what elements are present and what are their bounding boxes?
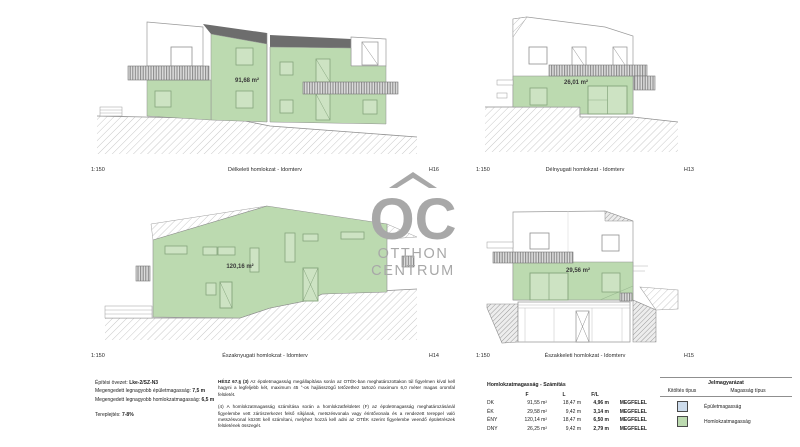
otthon-centrum-watermark: OC OTTHON CENTRUM <box>360 168 466 280</box>
row-dny-l: 9,42 m <box>547 426 581 432</box>
zone-line: Építési övezet: Lke-2/SZ-N3 <box>95 379 215 387</box>
zone-value: Lke-2/SZ-N3 <box>129 380 158 386</box>
facade-height-calculation-table: Homlokzatmagasság - Számítás F L F/L DK … <box>487 382 647 432</box>
facade-area-label: 91,68 m² <box>235 77 259 84</box>
facade-height-value: 6,5 m <box>201 397 214 403</box>
zone-info-block: Építési övezet: Lke-2/SZ-N3 Megengedett … <box>95 379 215 420</box>
header-empty <box>609 392 647 398</box>
row-eny-f: 120,14 m² <box>507 417 547 423</box>
drawing-scale: 1:150 <box>476 353 516 359</box>
row-dk-l: 18,47 m <box>547 400 581 406</box>
facade-area-label: 26,01 m² <box>564 79 588 86</box>
row-dny-f: 26,25 m² <box>507 426 547 432</box>
row-dny-result: MEGFELEL <box>609 426 647 432</box>
table-title: Homlokzatmagasság - Számítás <box>487 382 647 388</box>
slope-line: Tereplejtés: 7-8% <box>95 411 215 419</box>
elevation-southeast-canvas: 91,68 m² <box>85 4 445 164</box>
drawing-code: H14 <box>399 353 439 359</box>
legend-headers: Kitöltés típus Magasság típus <box>660 386 792 397</box>
row-dk-direction: DK <box>487 400 507 406</box>
legend: Jelmagyarázat Kitöltés típus Magasság tí… <box>660 377 792 427</box>
legend-col-height-type: Magasság típus <box>704 388 792 394</box>
facade-area-label: 29,56 m² <box>566 267 590 274</box>
row-dny-direction: DNY <box>487 426 507 432</box>
legend-label-facade-height: Homlokzatmagasság <box>704 419 792 425</box>
drawing-scale: 1:150 <box>91 353 131 359</box>
facade-height-label: Megengedett legnagyobb homlokzatmagasság… <box>95 397 201 403</box>
balcony <box>493 252 573 263</box>
facade-area-label: 120,16 m² <box>226 263 253 270</box>
drawing-caption: 1:150 Északnyugati homlokzat - Idomterv … <box>85 350 445 361</box>
header-empty <box>487 392 507 398</box>
house-left-section <box>128 22 267 122</box>
roof-icon <box>383 168 443 189</box>
drawing-scale: 1:150 <box>91 167 131 173</box>
balcony-end-left <box>136 266 150 281</box>
balcony-side <box>634 76 655 90</box>
building-height-label: Megengedett legnagyobb épületmagasság: <box>95 388 192 394</box>
drawing-title: Délkeleti homlokzat - Idomterv <box>131 167 399 173</box>
slope-value: 7-8% <box>122 412 134 418</box>
elevation-southwest: 26,01 m² 1:150 Délnyugati homlokzat - Id… <box>470 4 700 176</box>
header-fl: F/L <box>581 392 609 398</box>
table-grid: F L F/L DK 91,55 m² 18,47 m 4,96 m MEGFE… <box>487 392 647 432</box>
drawing-caption: 1:150 Délnyugati homlokzat - Idomterv H1… <box>470 164 700 175</box>
drawing-code: H15 <box>654 353 694 359</box>
regulation-clause-ref: HÉSZ 67.§ (3) <box>218 379 249 384</box>
building-height-line: Megengedett legnagyobb épületmagasság: 7… <box>95 387 215 395</box>
row-dk-fl: 4,96 m <box>581 400 609 406</box>
regulation-paragraph-1-text: Az épületmagasság megállapítása során az… <box>218 379 455 397</box>
row-ek-result: MEGFELEL <box>609 409 647 415</box>
row-ek-l: 9,42 m <box>547 409 581 415</box>
legend-swatch-building-height <box>677 401 688 412</box>
regulation-paragraph-2: (4) A homlokzatmagasság számítása során … <box>218 404 455 430</box>
row-eny-l: 18,47 m <box>547 417 581 423</box>
legend-label-building-height: Épületmagasság <box>704 404 792 410</box>
regulation-text-block: HÉSZ 67.§ (3) Az épületmagasság megállap… <box>218 379 455 436</box>
watermark-monogram: OC <box>360 194 466 246</box>
basement <box>518 302 630 342</box>
elevation-southeast: 91,68 m² 1:150 Délkeleti homlokzat - Ido… <box>85 4 445 176</box>
elevation-northeast-canvas: 29,56 m² <box>470 190 700 350</box>
roof-hatch <box>605 211 633 221</box>
legend-item-facade-height: Homlokzatmagasság <box>660 416 792 427</box>
drawing-title: Északnyugati homlokzat - Idomterv <box>131 353 399 359</box>
elevation-southwest-canvas: 26,01 m² <box>470 4 700 164</box>
watermark-line-2: CENTRUM <box>360 263 466 280</box>
house <box>487 211 648 301</box>
drawing-title: Északkeleti homlokzat - Idomterv <box>516 353 654 359</box>
legend-item-building-height: Épületmagasság <box>660 401 792 412</box>
legend-col-fill-type: Kitöltés típus <box>660 388 704 394</box>
drawing-scale: 1:150 <box>476 167 516 173</box>
regulation-paragraph-1: HÉSZ 67.§ (3) Az épületmagasság megállap… <box>218 379 455 398</box>
row-dny-fl: 2,79 m <box>581 426 609 432</box>
row-ek-fl: 3,14 m <box>581 409 609 415</box>
slope-label: Tereplejtés: <box>95 412 122 418</box>
legend-swatch-facade-height <box>677 416 688 427</box>
zone-label: Építési övezet: <box>95 380 129 386</box>
spacer <box>95 404 215 411</box>
row-dk-result: MEGFELEL <box>609 400 647 406</box>
house-right-section <box>270 35 398 124</box>
row-eny-direction: ÉNY <box>487 417 507 423</box>
drawing-caption: 1:150 Északkeleti homlokzat - Idomterv H… <box>470 350 700 361</box>
drawing-title: Délnyugati homlokzat - Idomterv <box>516 167 654 173</box>
row-dk-f: 91,55 m² <box>507 400 547 406</box>
row-ek-f: 29,58 m² <box>507 409 547 415</box>
building-height-value: 7,5 m <box>192 388 205 394</box>
house <box>497 17 655 114</box>
row-ek-direction: ÉK <box>487 409 507 415</box>
balcony-right <box>303 82 398 94</box>
row-eny-result: MEGFELEL <box>609 417 647 423</box>
drawing-code: H13 <box>654 167 694 173</box>
balcony <box>549 65 647 76</box>
header-l: L <box>547 392 581 398</box>
header-f: F <box>507 392 547 398</box>
row-eny-fl: 6,50 m <box>581 417 609 423</box>
balcony-left <box>128 66 209 80</box>
facade-height-line: Megengedett legnagyobb homlokzatmagasság… <box>95 396 215 404</box>
elevation-northeast: 29,56 m² 1:150 Északkeleti homlokzat - I… <box>470 190 700 362</box>
